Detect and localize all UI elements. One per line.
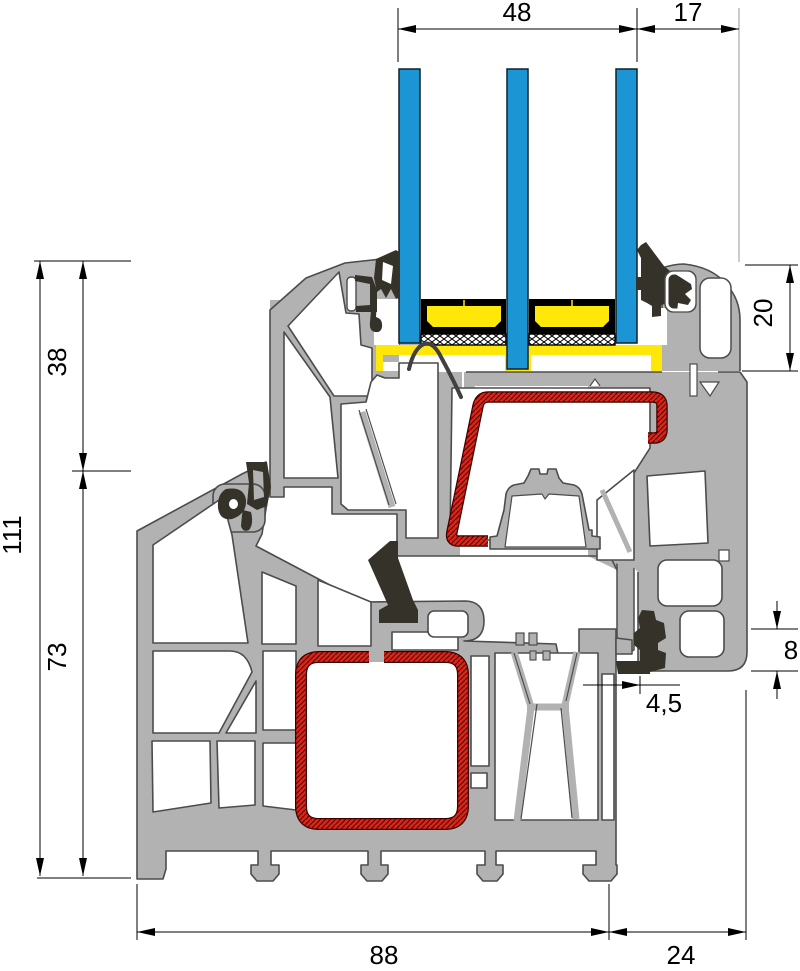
svg-text:4,5: 4,5: [646, 688, 682, 718]
svg-text:38: 38: [42, 348, 72, 377]
svg-text:8: 8: [784, 635, 798, 665]
svg-text:73: 73: [42, 643, 72, 672]
svg-text:88: 88: [370, 940, 399, 970]
svg-text:24: 24: [667, 940, 696, 970]
svg-text:17: 17: [674, 0, 703, 27]
svg-text:20: 20: [748, 299, 778, 328]
svg-text:111: 111: [0, 515, 27, 555]
svg-text:48: 48: [503, 0, 532, 27]
